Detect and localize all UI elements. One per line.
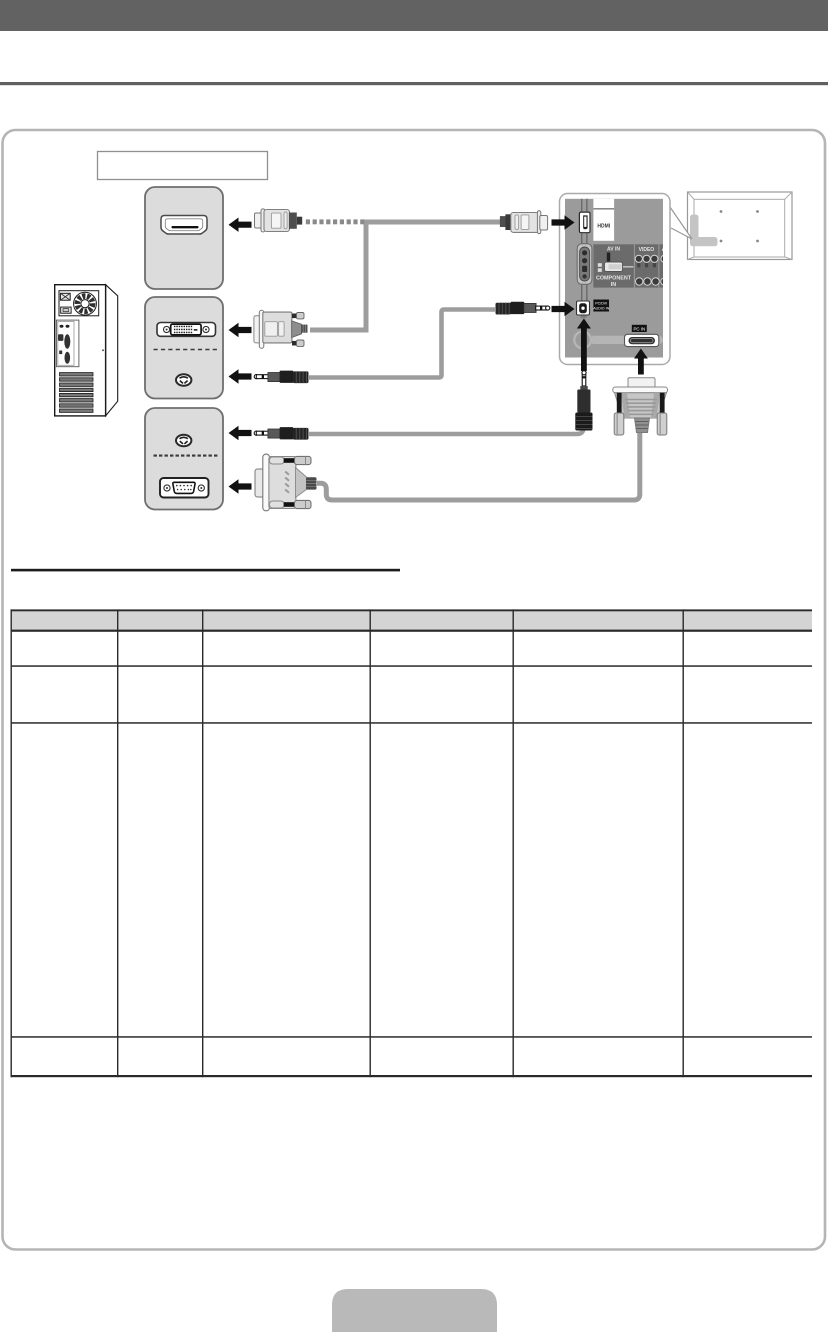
svg-text:COMPONENT: COMPONENT xyxy=(596,276,632,282)
svg-text:VIDEO: VIDEO xyxy=(639,247,655,253)
svg-text:AUDIO IN: AUDIO IN xyxy=(593,307,609,311)
svg-text:PC IN: PC IN xyxy=(633,326,645,331)
svg-text:HDMI: HDMI xyxy=(597,223,610,229)
svg-text:PC/DVI: PC/DVI xyxy=(595,302,607,306)
svg-text:AV IN: AV IN xyxy=(607,247,620,253)
svg-text:IN: IN xyxy=(611,282,616,288)
